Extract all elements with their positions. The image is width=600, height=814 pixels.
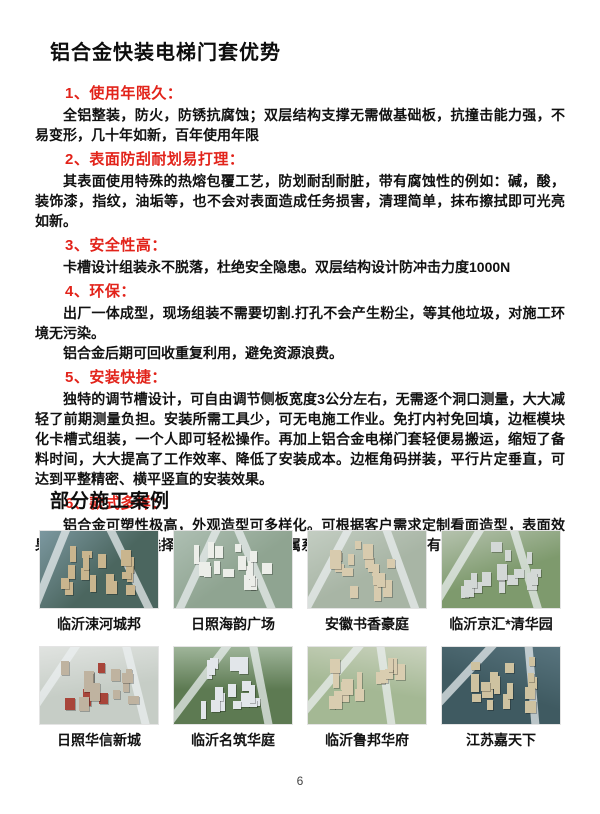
- advantage-section: 5、安装快捷： 独特的调节槽设计，可自由调节侧板宽度3公分左右，无需逐个洞口测量…: [35, 366, 565, 489]
- advantage-paragraph: 其表面使用特殊的热熔包覆工艺，防划耐刮耐脏，带有腐蚀性的例如：碱，酸，装饰漆，指…: [35, 171, 565, 231]
- case-photo: [307, 530, 427, 609]
- advantage-paragraph: 铝合金后期可回收重复利用，避免资源浪费。: [35, 343, 565, 363]
- case-caption: 临沂京汇*清华园: [441, 614, 561, 634]
- cases-section-title: 部分施工案例: [50, 486, 170, 513]
- building-graphic: [194, 545, 199, 564]
- building-graphic: [90, 575, 96, 592]
- building-graphic: [342, 679, 352, 696]
- building-graphic: [342, 568, 353, 576]
- building-graphic: [374, 584, 381, 601]
- advantage-heading: 4、环保：: [65, 280, 565, 301]
- building-graphic: [487, 700, 492, 710]
- building-graphic: [122, 673, 133, 683]
- building-graphic: [330, 550, 340, 568]
- case-photo: [441, 646, 561, 725]
- building-graphic: [61, 661, 69, 675]
- advantage-heading: 5、安装快捷：: [65, 366, 565, 387]
- building-graphic: [528, 673, 534, 682]
- advantage-heading: 1、使用年限久：: [65, 82, 565, 103]
- building-graphic: [201, 701, 206, 718]
- building-graphic: [83, 554, 89, 570]
- page-title: 铝合金快装电梯门套优势: [0, 0, 600, 75]
- case-caption: 日照海韵广场: [173, 614, 293, 634]
- road-graphic: [39, 646, 85, 725]
- page-number: 6: [0, 774, 600, 788]
- building-graphic: [79, 697, 89, 711]
- building-graphic: [239, 657, 249, 674]
- building-graphic: [472, 694, 481, 702]
- building-graphic: [514, 569, 524, 578]
- building-graphic: [494, 676, 501, 694]
- building-graphic: [208, 667, 216, 675]
- building-graphic: [70, 546, 76, 562]
- building-graphic: [65, 698, 75, 710]
- building-graphic: [341, 694, 349, 702]
- case-caption: 临沂名筑华庭: [173, 730, 293, 750]
- case-caption: 安徽书香豪庭: [307, 614, 427, 634]
- advantage-paragraph: 独特的调节槽设计，可自由调节侧板宽度3公分左右，无需逐个洞口测量，大大减轻了前期…: [35, 389, 565, 489]
- building-graphic: [122, 572, 131, 579]
- building-graphic: [471, 662, 480, 670]
- advantage-heading: 3、安全性高：: [65, 234, 565, 255]
- case-item: 临沂涑河城邦: [39, 530, 159, 638]
- building-graphic: [250, 576, 256, 587]
- building-graphic: [238, 556, 246, 570]
- building-graphic: [348, 554, 354, 565]
- building-graphic: [525, 701, 536, 713]
- advantage-section: 3、安全性高： 卡槽设计组装永不脱落，杜绝安全隐患。双层结构设计防冲击力度100…: [35, 234, 565, 277]
- building-graphic: [505, 550, 511, 561]
- advantage-paragraph: 全铝整装，防火，防锈抗腐蚀；双层结构支撑无需做基础板，抗撞击能力强，不易变形，几…: [35, 105, 565, 145]
- building-graphic: [90, 683, 100, 701]
- case-item: 临沂京汇*清华园: [441, 530, 561, 638]
- case-caption: 临沂鲁邦华府: [307, 730, 427, 750]
- building-graphic: [235, 544, 241, 553]
- building-graphic: [505, 663, 514, 673]
- case-photo: [441, 530, 561, 609]
- case-item: 日照海韵广场: [173, 530, 293, 638]
- building-graphic: [113, 690, 119, 699]
- building-graphic: [531, 577, 537, 585]
- building-graphic: [106, 581, 117, 594]
- advantages-list: 1、使用年限久： 全铝整装，防火，防锈抗腐蚀；双层结构支撑无需做基础板，抗撞击能…: [0, 75, 600, 555]
- advantage-section: 1、使用年限久： 全铝整装，防火，防锈抗腐蚀；双层结构支撑无需做基础板，抗撞击能…: [35, 82, 565, 145]
- building-graphic: [350, 586, 358, 599]
- building-graphic: [214, 561, 220, 574]
- case-photo: [39, 530, 159, 609]
- case-item: 江苏嘉天下: [441, 646, 561, 754]
- building-graphic: [208, 542, 214, 558]
- building-graphic: [497, 564, 508, 580]
- building-graphic: [111, 669, 120, 682]
- building-graphic: [471, 573, 477, 588]
- building-graphic: [388, 658, 393, 672]
- advantage-paragraph: 出厂一体成型，现场组装不需要切割.打孔不会产生粉尘，等其他垃圾，对施工环境无污染…: [35, 303, 565, 343]
- building-graphic: [128, 696, 138, 704]
- building-graphic: [233, 701, 240, 709]
- building-graphic: [61, 578, 69, 589]
- case-photo: [39, 646, 159, 725]
- case-photo: [173, 646, 293, 725]
- advantage-paragraph: 卡槽设计组装永不脱落，杜绝安全隐患。双层结构设计防冲击力度1000N: [35, 257, 565, 277]
- building-graphic: [491, 542, 502, 552]
- road-graphic: [229, 530, 281, 609]
- case-photo: [307, 646, 427, 725]
- case-caption: 临沂涑河城邦: [39, 614, 159, 634]
- building-graphic: [377, 573, 385, 586]
- building-graphic: [68, 565, 75, 578]
- building-graphic: [204, 566, 211, 577]
- building-graphic: [330, 659, 340, 672]
- case-caption: 日照华信新城: [39, 730, 159, 750]
- document-page: 铝合金快装电梯门套优势 1、使用年限久： 全铝整装，防火，防锈抗腐蚀；双层结构支…: [0, 0, 600, 814]
- building-graphic: [481, 682, 489, 691]
- building-graphic: [262, 563, 272, 574]
- building-graphic: [215, 546, 224, 558]
- advantage-section: 2、表面防刮耐划易打理： 其表面使用特殊的热熔包覆工艺，防划耐刮耐脏，带有腐蚀性…: [35, 148, 565, 231]
- case-gallery: 临沂涑河城邦 日照海韵广场 安徽书香豪庭 临沂京汇*清华园 日照华信新城 临沂名…: [39, 530, 561, 754]
- case-item: 日照华信新城: [39, 646, 159, 754]
- building-graphic: [223, 569, 234, 576]
- building-graphic: [250, 551, 256, 562]
- advantage-heading: 2、表面防刮耐划易打理：: [65, 148, 565, 169]
- case-item: 临沂名筑华庭: [173, 646, 293, 754]
- building-graphic: [525, 687, 535, 700]
- building-graphic: [249, 685, 254, 703]
- building-graphic: [355, 689, 364, 700]
- building-graphic: [211, 700, 219, 712]
- building-graphic: [363, 544, 373, 559]
- building-graphic: [126, 585, 135, 595]
- building-graphic: [507, 683, 513, 699]
- building-graphic: [471, 674, 479, 692]
- building-graphic: [355, 541, 362, 550]
- building-graphic: [98, 663, 105, 673]
- case-photo: [173, 530, 293, 609]
- building-graphic: [334, 691, 343, 709]
- building-graphic: [527, 552, 532, 564]
- case-item: 临沂鲁邦华府: [307, 646, 427, 754]
- building-graphic: [228, 684, 236, 697]
- building-graphic: [529, 657, 536, 667]
- case-caption: 江苏嘉天下: [441, 730, 561, 750]
- building-graphic: [482, 572, 491, 586]
- advantage-section: 4、环保： 出厂一体成型，现场组装不需要切割.打孔不会产生粉尘，等其他垃圾，对施…: [35, 280, 565, 363]
- building-graphic: [387, 559, 395, 568]
- building-graphic: [357, 672, 363, 689]
- building-graphic: [121, 550, 131, 567]
- case-item: 安徽书香豪庭: [307, 530, 427, 638]
- building-graphic: [98, 554, 106, 569]
